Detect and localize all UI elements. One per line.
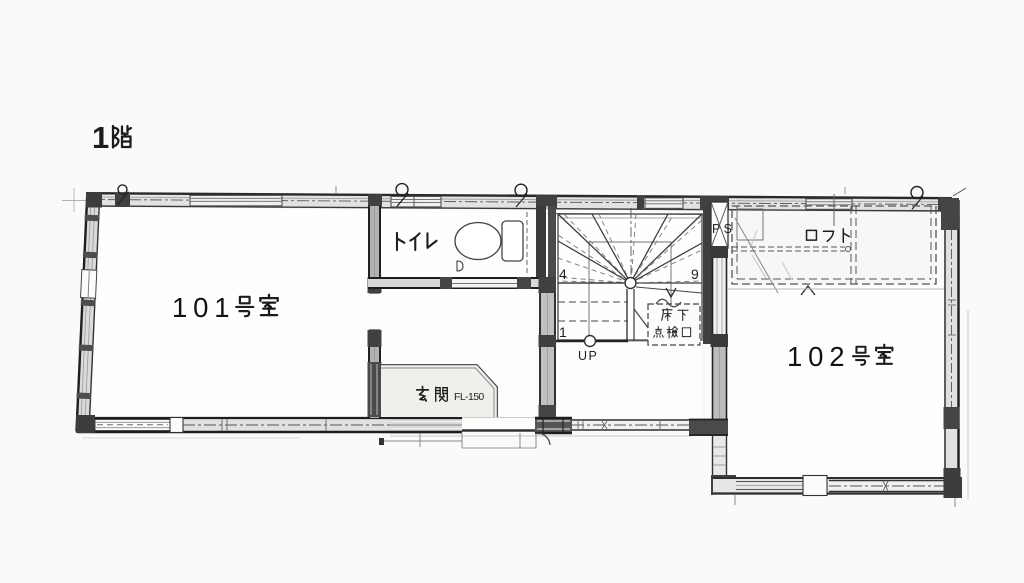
svg-text:UP: UP bbox=[578, 349, 598, 363]
svg-text:1: 1 bbox=[559, 324, 567, 340]
svg-text:FL-150: FL-150 bbox=[454, 391, 484, 403]
svg-text:9: 9 bbox=[691, 266, 699, 282]
svg-text:P S: P S bbox=[712, 222, 732, 236]
svg-text:102: 102 bbox=[787, 341, 850, 372]
svg-text:101: 101 bbox=[172, 292, 235, 323]
svg-text:4: 4 bbox=[559, 266, 567, 282]
svg-text:1: 1 bbox=[92, 120, 109, 155]
